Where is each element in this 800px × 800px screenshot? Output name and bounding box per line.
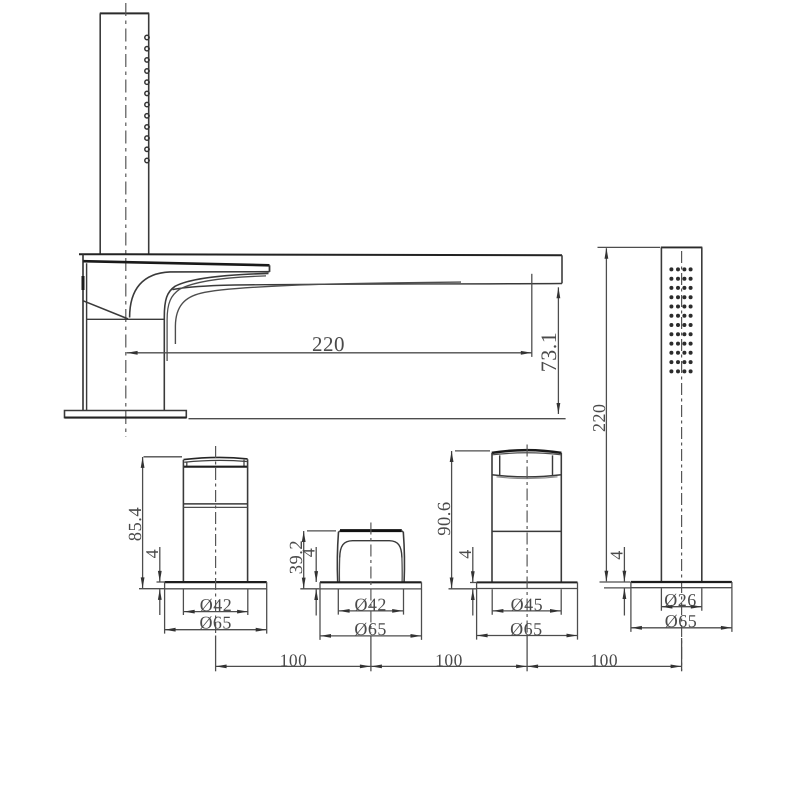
svg-text:85.4: 85.4 [126,507,146,541]
svg-text:Ø65: Ø65 [199,613,232,633]
svg-text:100: 100 [435,650,463,670]
svg-text:Ø65: Ø65 [354,619,387,639]
svg-text:Ø42: Ø42 [354,595,387,615]
svg-text:Ø65: Ø65 [665,611,698,631]
svg-text:100: 100 [590,650,618,670]
svg-text:4: 4 [142,549,162,559]
svg-text:4: 4 [299,548,319,558]
svg-text:100: 100 [280,650,308,670]
svg-text:220: 220 [312,332,345,356]
svg-text:220: 220 [589,403,609,432]
svg-text:73.1: 73.1 [536,332,561,373]
svg-text:Ø26: Ø26 [664,590,697,610]
svg-text:90.6: 90.6 [435,501,455,535]
svg-text:4: 4 [607,550,627,560]
svg-text:4: 4 [455,549,475,559]
svg-text:Ø65: Ø65 [510,619,543,639]
svg-text:Ø45: Ø45 [511,594,544,614]
